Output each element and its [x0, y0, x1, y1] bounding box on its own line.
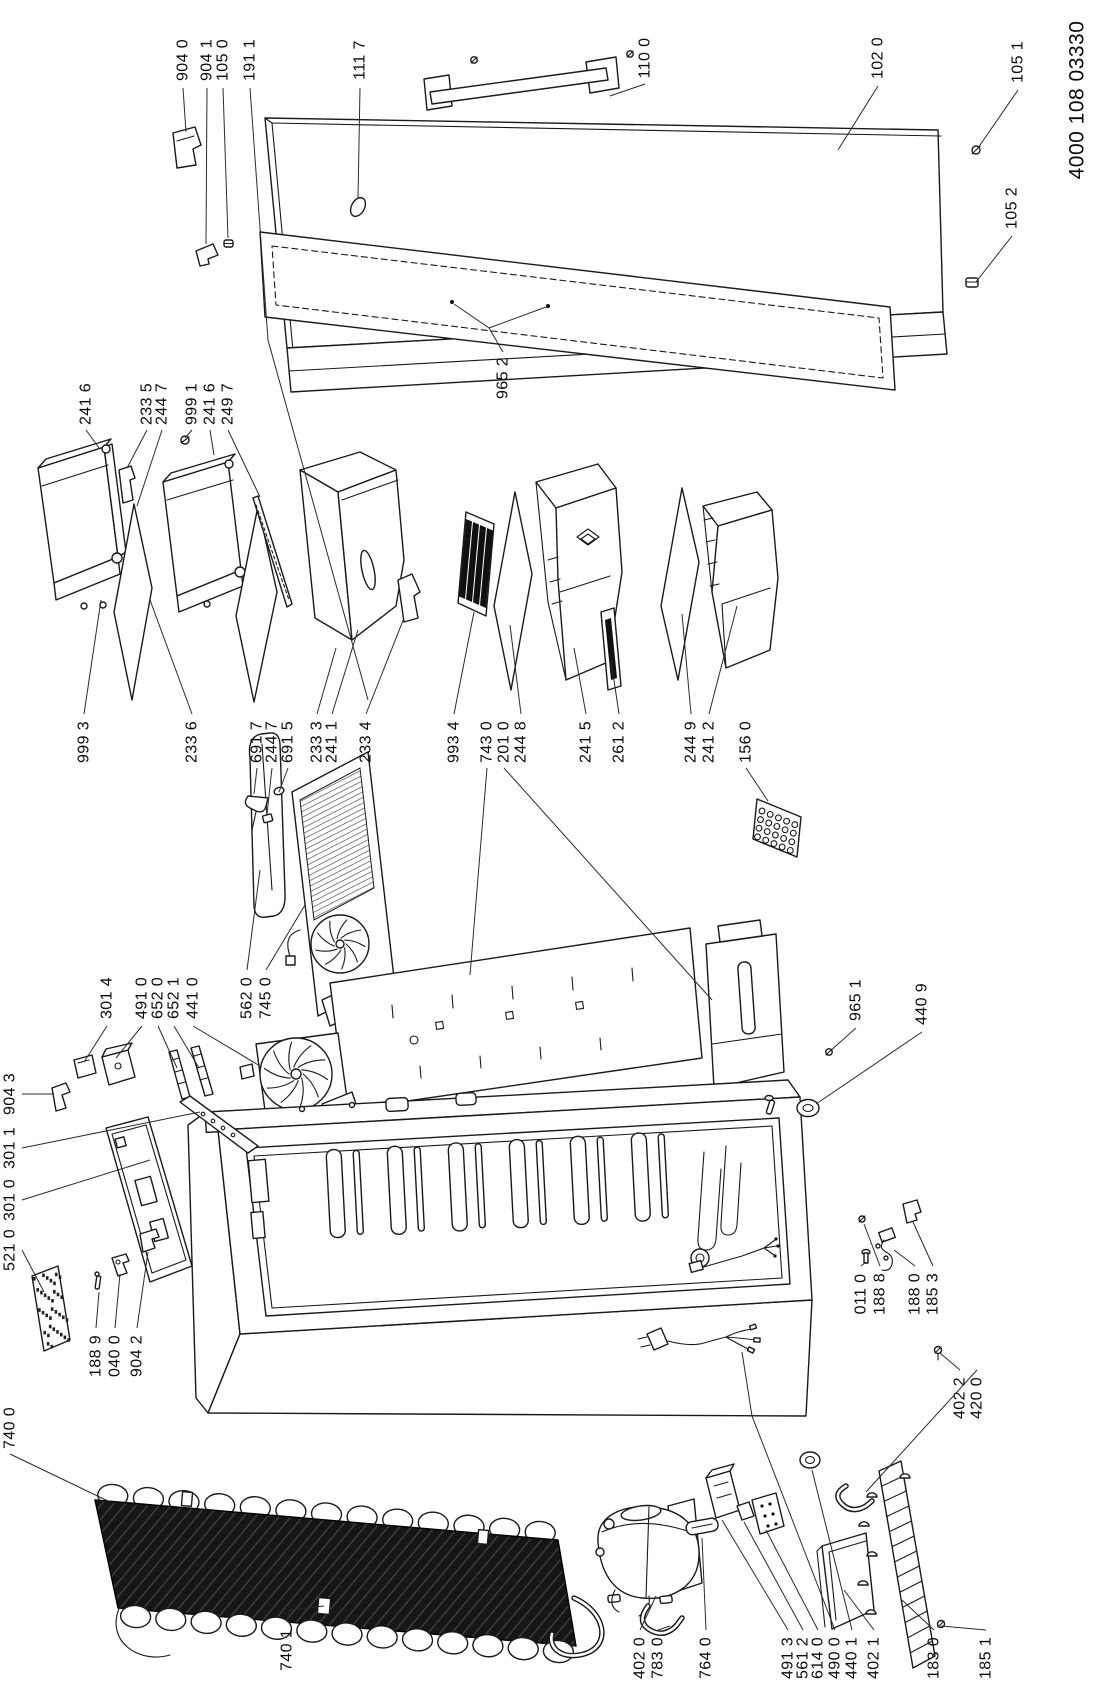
part-label-233-5-11: 233 5 [127, 383, 156, 468]
screw-999-1 [181, 436, 189, 444]
box-491-0 [102, 1043, 135, 1085]
part-label-904-0-0: 904 0 [175, 39, 192, 132]
bolt-011-0 [862, 1250, 870, 1264]
door-shelf-241-6-b [163, 454, 245, 612]
rail-261-2 [601, 608, 621, 690]
part-number: 301 1 [2, 1127, 19, 1169]
part-number: 491 0 [134, 977, 151, 1019]
diagram-canvas: 904 0904 1105 0191 1111 7110 0102 0105 1… [0, 0, 1100, 1686]
pin-188-9 [95, 1272, 101, 1289]
part-number: 740 0 [2, 1407, 19, 1449]
part-label-241-6-14: 241 6 [202, 383, 219, 455]
part-label-491-3-60: 491 3 [722, 1520, 797, 1679]
part-number: 301 0 [2, 1179, 19, 1221]
part-number: 965 1 [848, 979, 865, 1021]
part-label-156-0-32: 156 0 [738, 721, 769, 801]
part-number: 183 0 [926, 1637, 943, 1679]
part-number: 993 4 [446, 721, 463, 763]
part-number: 743 0 [479, 721, 496, 763]
pcb-521-0 [32, 1266, 70, 1351]
part-number: 249 7 [220, 383, 237, 425]
part-label-105-0-2: 105 0 [215, 39, 232, 238]
crisper-drawer-241-2 [703, 492, 778, 668]
part-number: 965 2 [495, 357, 512, 399]
part-number: 301 4 [99, 977, 116, 1019]
part-number: 402 2 [952, 1377, 969, 1419]
hook-420-0 [838, 1486, 872, 1510]
part-number: 999 1 [184, 383, 201, 425]
part-number: 233 4 [358, 721, 375, 763]
compressor-402-0 [596, 1499, 702, 1616]
part-number: 244 8 [513, 721, 530, 763]
part-number: 521 0 [2, 1229, 19, 1271]
relay-491-3 [706, 1464, 740, 1518]
part-number: 440 9 [914, 983, 931, 1025]
part-number: 110 0 [637, 38, 654, 79]
hinge-cover-904-0 [173, 127, 201, 168]
condenser-740-0 [95, 1483, 602, 1664]
part-040-0 [112, 1254, 129, 1276]
part-label-188-9-46: 188 9 [88, 1292, 105, 1377]
part-number: 490 0 [827, 1637, 844, 1679]
part-number: 562 0 [239, 977, 256, 1019]
part-number: 441 0 [185, 977, 202, 1019]
exploded-parts-diagram: 904 0904 1105 0191 1111 7110 0102 0105 1… [0, 0, 1100, 1686]
part-number: 241 5 [578, 721, 595, 763]
egg-tray-156-0 [753, 799, 801, 857]
part-label-904-3-42: 904 3 [2, 1073, 55, 1115]
part-label-740-0-55: 740 0 [2, 1407, 111, 1502]
part-label-185-1-67: 185 1 [941, 1626, 995, 1679]
drawer-233-3 [300, 452, 404, 640]
part-number: 691 5 [280, 721, 297, 763]
part-number: 241 1 [324, 721, 341, 763]
part-number: 105 2 [1004, 187, 1021, 229]
part-label-993-4-24: 993 4 [446, 612, 475, 763]
pipe-783-0 [642, 1606, 682, 1633]
part-number: 745 0 [258, 977, 275, 1019]
part-label-999-1-13: 999 1 [184, 383, 201, 438]
part-number: 105 0 [215, 39, 232, 81]
part-label-440-9-41: 440 9 [816, 983, 931, 1104]
part-number: 185 1 [978, 1637, 995, 1679]
part-label-999-3-16: 999 3 [76, 600, 102, 763]
part-label-188-0-51: 188 0 [894, 1250, 924, 1315]
part-number: 740 1 [279, 1629, 296, 1671]
part-number: 185 3 [925, 1273, 942, 1315]
crisper-cover-244-9 [661, 488, 699, 680]
part-number: 402 0 [632, 1637, 649, 1679]
part-label-105-1-7: 105 1 [978, 41, 1027, 148]
part-number: 402 1 [866, 1637, 883, 1679]
part-number: 233 6 [184, 721, 201, 763]
part-label-743-0-25: 743 0 [470, 721, 496, 975]
part-label-301-1-43: 301 1 [2, 1112, 201, 1169]
screw-105-0 [224, 240, 233, 247]
glass-plate-244-8 [494, 492, 532, 690]
part-number: 244 9 [683, 721, 700, 763]
part-number: 244 7 [154, 383, 171, 425]
part-number: 764 0 [698, 1637, 715, 1679]
door-handle-110-0 [424, 51, 633, 110]
part-label-040-0-47: 040 0 [107, 1274, 124, 1377]
part-904-1 [196, 244, 218, 266]
part-label-233-6-17: 233 6 [150, 600, 201, 763]
grommet-440-1 [800, 1452, 820, 1468]
part-label-011-0-49: 011 0 [853, 1262, 870, 1314]
bushing-105-2 [966, 278, 978, 287]
air-duct-201-0 [706, 920, 784, 1088]
clip-244-7 [262, 814, 273, 823]
part-label-904-1-1: 904 1 [199, 39, 216, 244]
part-number: 156 0 [738, 721, 755, 763]
part-number: 191 1 [242, 39, 259, 81]
bracket-233-4 [398, 574, 420, 622]
part-number: 241 6 [202, 383, 219, 425]
part-number: 904 0 [175, 39, 192, 81]
part-number: 261 2 [611, 721, 628, 763]
terminal-614-0 [752, 1493, 784, 1534]
clip-561-2 [737, 1502, 754, 1520]
part-number: 188 0 [907, 1273, 924, 1315]
vent-grille-993-4 [458, 512, 494, 616]
part-number: 188 8 [872, 1273, 889, 1315]
part-label-745-0-34: 745 0 [258, 905, 306, 1019]
bracket-904-3 [52, 1083, 70, 1111]
part-label-244-8-27: 244 8 [510, 625, 530, 763]
part-number: 904 2 [129, 1335, 146, 1377]
part-number: 999 3 [76, 721, 93, 763]
part-number: 420 0 [969, 1377, 986, 1419]
part-number: 011 0 [853, 1274, 870, 1315]
part-label-241-6-10: 241 6 [78, 383, 100, 448]
part-number: 241 6 [78, 383, 95, 425]
document-number: 4000 108 03330 [1066, 21, 1089, 180]
part-number: 105 1 [1010, 41, 1027, 83]
cabinet-liner [246, 1118, 790, 1316]
part-label-561-2-61: 561 2 [744, 1522, 812, 1679]
part-number: 040 0 [107, 1335, 124, 1377]
part-number: 904 1 [199, 39, 216, 81]
part-number: 652 1 [166, 977, 183, 1019]
door-shelf-241-6-a [38, 439, 126, 600]
part-number: 904 3 [2, 1073, 19, 1115]
part-number: 201 0 [496, 721, 513, 763]
part-label-965-1-40: 965 1 [829, 979, 865, 1052]
part-number: 652 0 [150, 977, 167, 1019]
part-label-402-2-53: 402 2 [940, 1353, 969, 1419]
strip-652-1 [191, 1046, 213, 1096]
screw-188-8 [859, 1216, 865, 1222]
pad-301-4 [74, 1055, 96, 1078]
part-label-233-4-23: 233 4 [358, 618, 405, 763]
part-number: 102 0 [870, 37, 887, 79]
clip-185-3 [903, 1200, 921, 1223]
part-label-105-2-8: 105 2 [976, 187, 1021, 282]
part-number: 241 2 [701, 721, 718, 763]
part-number: 188 9 [88, 1335, 105, 1377]
part-number: 440 1 [844, 1637, 861, 1679]
part-number: 111 7 [352, 40, 369, 80]
clip-233-5 [119, 466, 135, 503]
part-number: 614 0 [810, 1637, 827, 1679]
part-number: 783 0 [650, 1637, 667, 1679]
part-label-904-2-48: 904 2 [129, 1252, 149, 1377]
part-label-241-1-22: 241 1 [324, 630, 359, 763]
part-number: 244 7 [264, 721, 281, 763]
